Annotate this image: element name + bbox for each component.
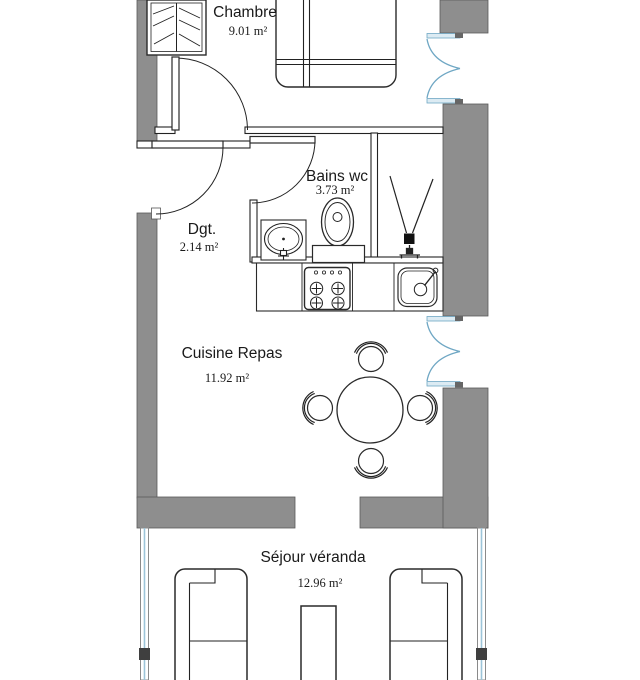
kitchen-counter [257, 263, 444, 311]
wall-right-lower [443, 388, 488, 528]
washbasin [261, 220, 306, 260]
window-swing-arc [427, 322, 460, 352]
wall-left-lower [137, 213, 157, 498]
wall-shower-partition [371, 133, 378, 262]
label-cuisine: Cuisine Repas [182, 345, 283, 362]
door-leaf [250, 137, 315, 144]
window-cuisine [427, 316, 463, 388]
wall-right-top [440, 0, 488, 33]
window-swing-arc [427, 39, 460, 69]
area-dgt: 2.14 m² [180, 240, 219, 254]
stove [305, 268, 351, 310]
area-cuisine: 11.92 m² [205, 371, 250, 385]
window-chambre [427, 33, 463, 105]
wall-bottom-left-bar [137, 497, 295, 528]
coffee-table [301, 606, 336, 680]
glass-wall-handle [476, 648, 487, 660]
door-swing-arc [156, 147, 223, 214]
dining-set [303, 342, 437, 478]
floor-plan-page: Chambre 9.01 m² Bains wc 3.73 m² Dgt. 2.… [0, 0, 640, 680]
double-bed [276, 0, 396, 87]
wall-dgt-top-right [222, 141, 250, 148]
round-dining-table [337, 377, 403, 443]
shower-drain [404, 234, 415, 245]
wall-dgt-top-left [137, 141, 153, 148]
area-bains: 3.73 m² [316, 183, 355, 197]
wall-bains-left [250, 200, 257, 262]
wall-chambre-bottom [245, 127, 443, 134]
shower [390, 176, 433, 259]
sofa-right [390, 569, 462, 680]
bed-outline [276, 0, 396, 87]
chair [408, 392, 438, 425]
label-dgt: Dgt. [188, 221, 216, 238]
door-leaf [152, 141, 223, 148]
label-chambre: Chambre [213, 4, 277, 21]
chair [355, 449, 388, 479]
glass-wall-handle [139, 648, 150, 660]
window-swing-arc [427, 69, 460, 99]
kitchen-sink [398, 268, 438, 307]
floor-plan-drawing: Chambre 9.01 m² Bains wc 3.73 m² Dgt. 2.… [0, 0, 640, 680]
veranda-glazing-left [139, 528, 150, 680]
toilet [313, 198, 365, 263]
area-chambre: 9.01 m² [229, 24, 268, 38]
wall-right-middle [443, 104, 488, 316]
veranda-glazing-right [476, 528, 487, 680]
door-leaf [172, 57, 179, 130]
entrance-door [152, 141, 223, 214]
area-sejour: 12.96 m² [298, 576, 343, 590]
label-sejour: Séjour véranda [260, 549, 366, 566]
wardrobe [147, 0, 206, 55]
sofa-left [175, 569, 247, 680]
window-hinge [455, 33, 463, 39]
door-swing-arc [176, 58, 248, 130]
window-hinge [455, 99, 463, 105]
chambre-door [172, 57, 248, 130]
toilet-tank [313, 246, 365, 263]
chair [303, 392, 333, 425]
chair [355, 342, 388, 372]
window-hinge [455, 316, 463, 322]
window-swing-arc [427, 352, 460, 382]
window-hinge [455, 382, 463, 388]
